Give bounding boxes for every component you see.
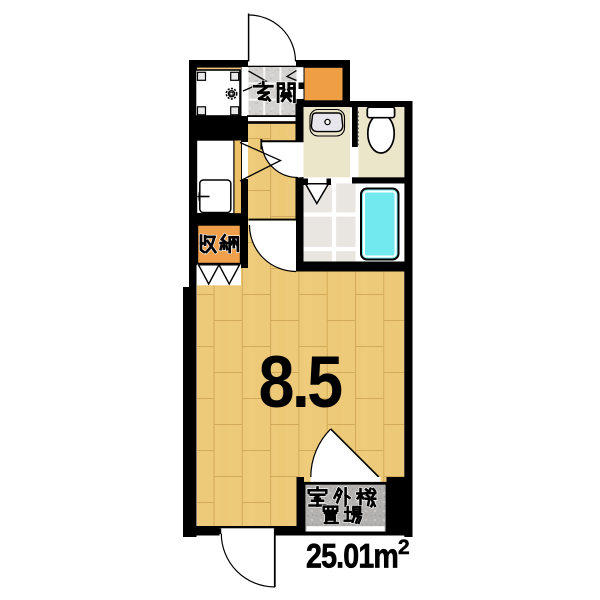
svg-text:25.01m: 25.01m <box>306 538 398 576</box>
svg-text:8.5: 8.5 <box>259 342 342 423</box>
svg-text:2: 2 <box>398 536 410 559</box>
